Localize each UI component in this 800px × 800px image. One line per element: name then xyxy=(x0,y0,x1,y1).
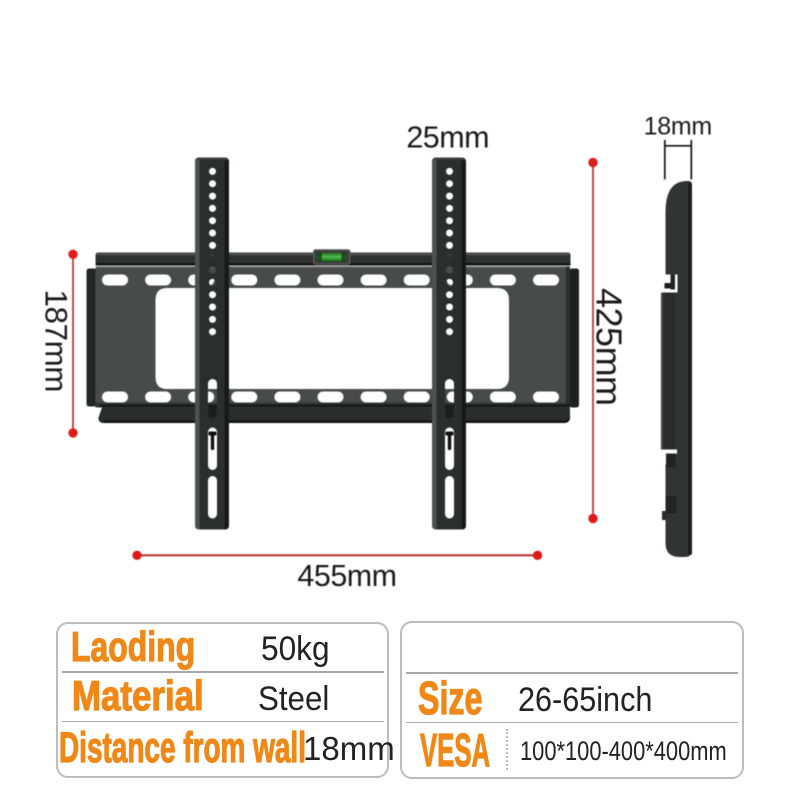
svg-text:425mm: 425mm xyxy=(589,288,630,406)
svg-text:455mm: 455mm xyxy=(297,559,396,593)
svg-text:187mm: 187mm xyxy=(39,290,75,393)
svg-text:18mm: 18mm xyxy=(644,112,712,140)
svg-text:25mm: 25mm xyxy=(406,121,489,155)
